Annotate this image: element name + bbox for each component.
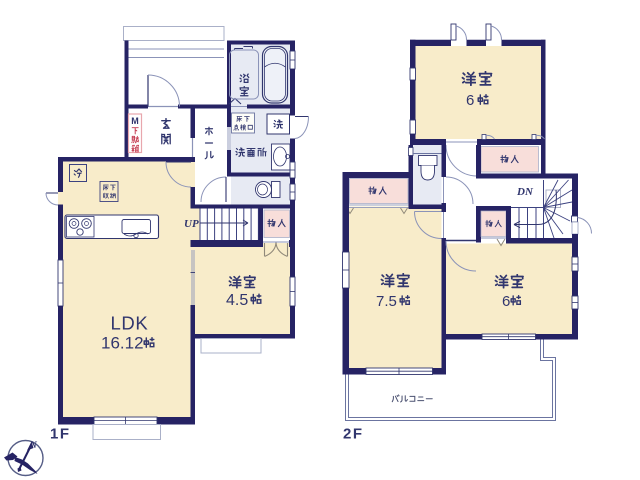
svg-text:N: N (29, 441, 38, 451)
svg-text:7.5: 7.5 (376, 293, 397, 310)
svg-text:DN: DN (516, 186, 534, 198)
svg-text:UP: UP (184, 218, 199, 230)
svg-text:1F: 1F (50, 426, 71, 443)
svg-text:6: 6 (466, 92, 474, 109)
svg-text:4.5: 4.5 (226, 292, 248, 309)
svg-text:6: 6 (502, 293, 510, 310)
svg-text:LDK: LDK (111, 313, 149, 334)
svg-text:2F: 2F (343, 426, 364, 443)
svg-text:M: M (131, 116, 139, 126)
svg-text:16.12: 16.12 (101, 334, 144, 353)
